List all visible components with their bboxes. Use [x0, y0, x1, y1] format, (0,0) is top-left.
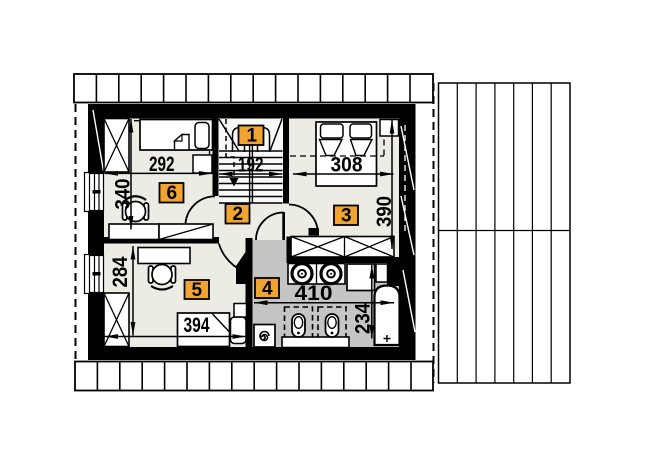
svg-text:4: 4	[262, 279, 273, 300]
svg-text:5: 5	[192, 280, 203, 301]
svg-text:410: 410	[295, 282, 333, 305]
svg-text:6: 6	[167, 183, 178, 204]
svg-text:308: 308	[331, 154, 363, 177]
svg-text:292: 292	[149, 153, 175, 176]
svg-text:340: 340	[112, 179, 135, 210]
svg-text:3: 3	[341, 206, 352, 227]
svg-text:192: 192	[238, 153, 264, 176]
svg-text:234: 234	[352, 303, 375, 334]
svg-text:2: 2	[233, 204, 244, 225]
svg-text:1: 1	[247, 126, 258, 147]
svg-text:390: 390	[373, 196, 396, 227]
svg-text:394: 394	[184, 314, 210, 337]
svg-text:284: 284	[109, 256, 132, 287]
